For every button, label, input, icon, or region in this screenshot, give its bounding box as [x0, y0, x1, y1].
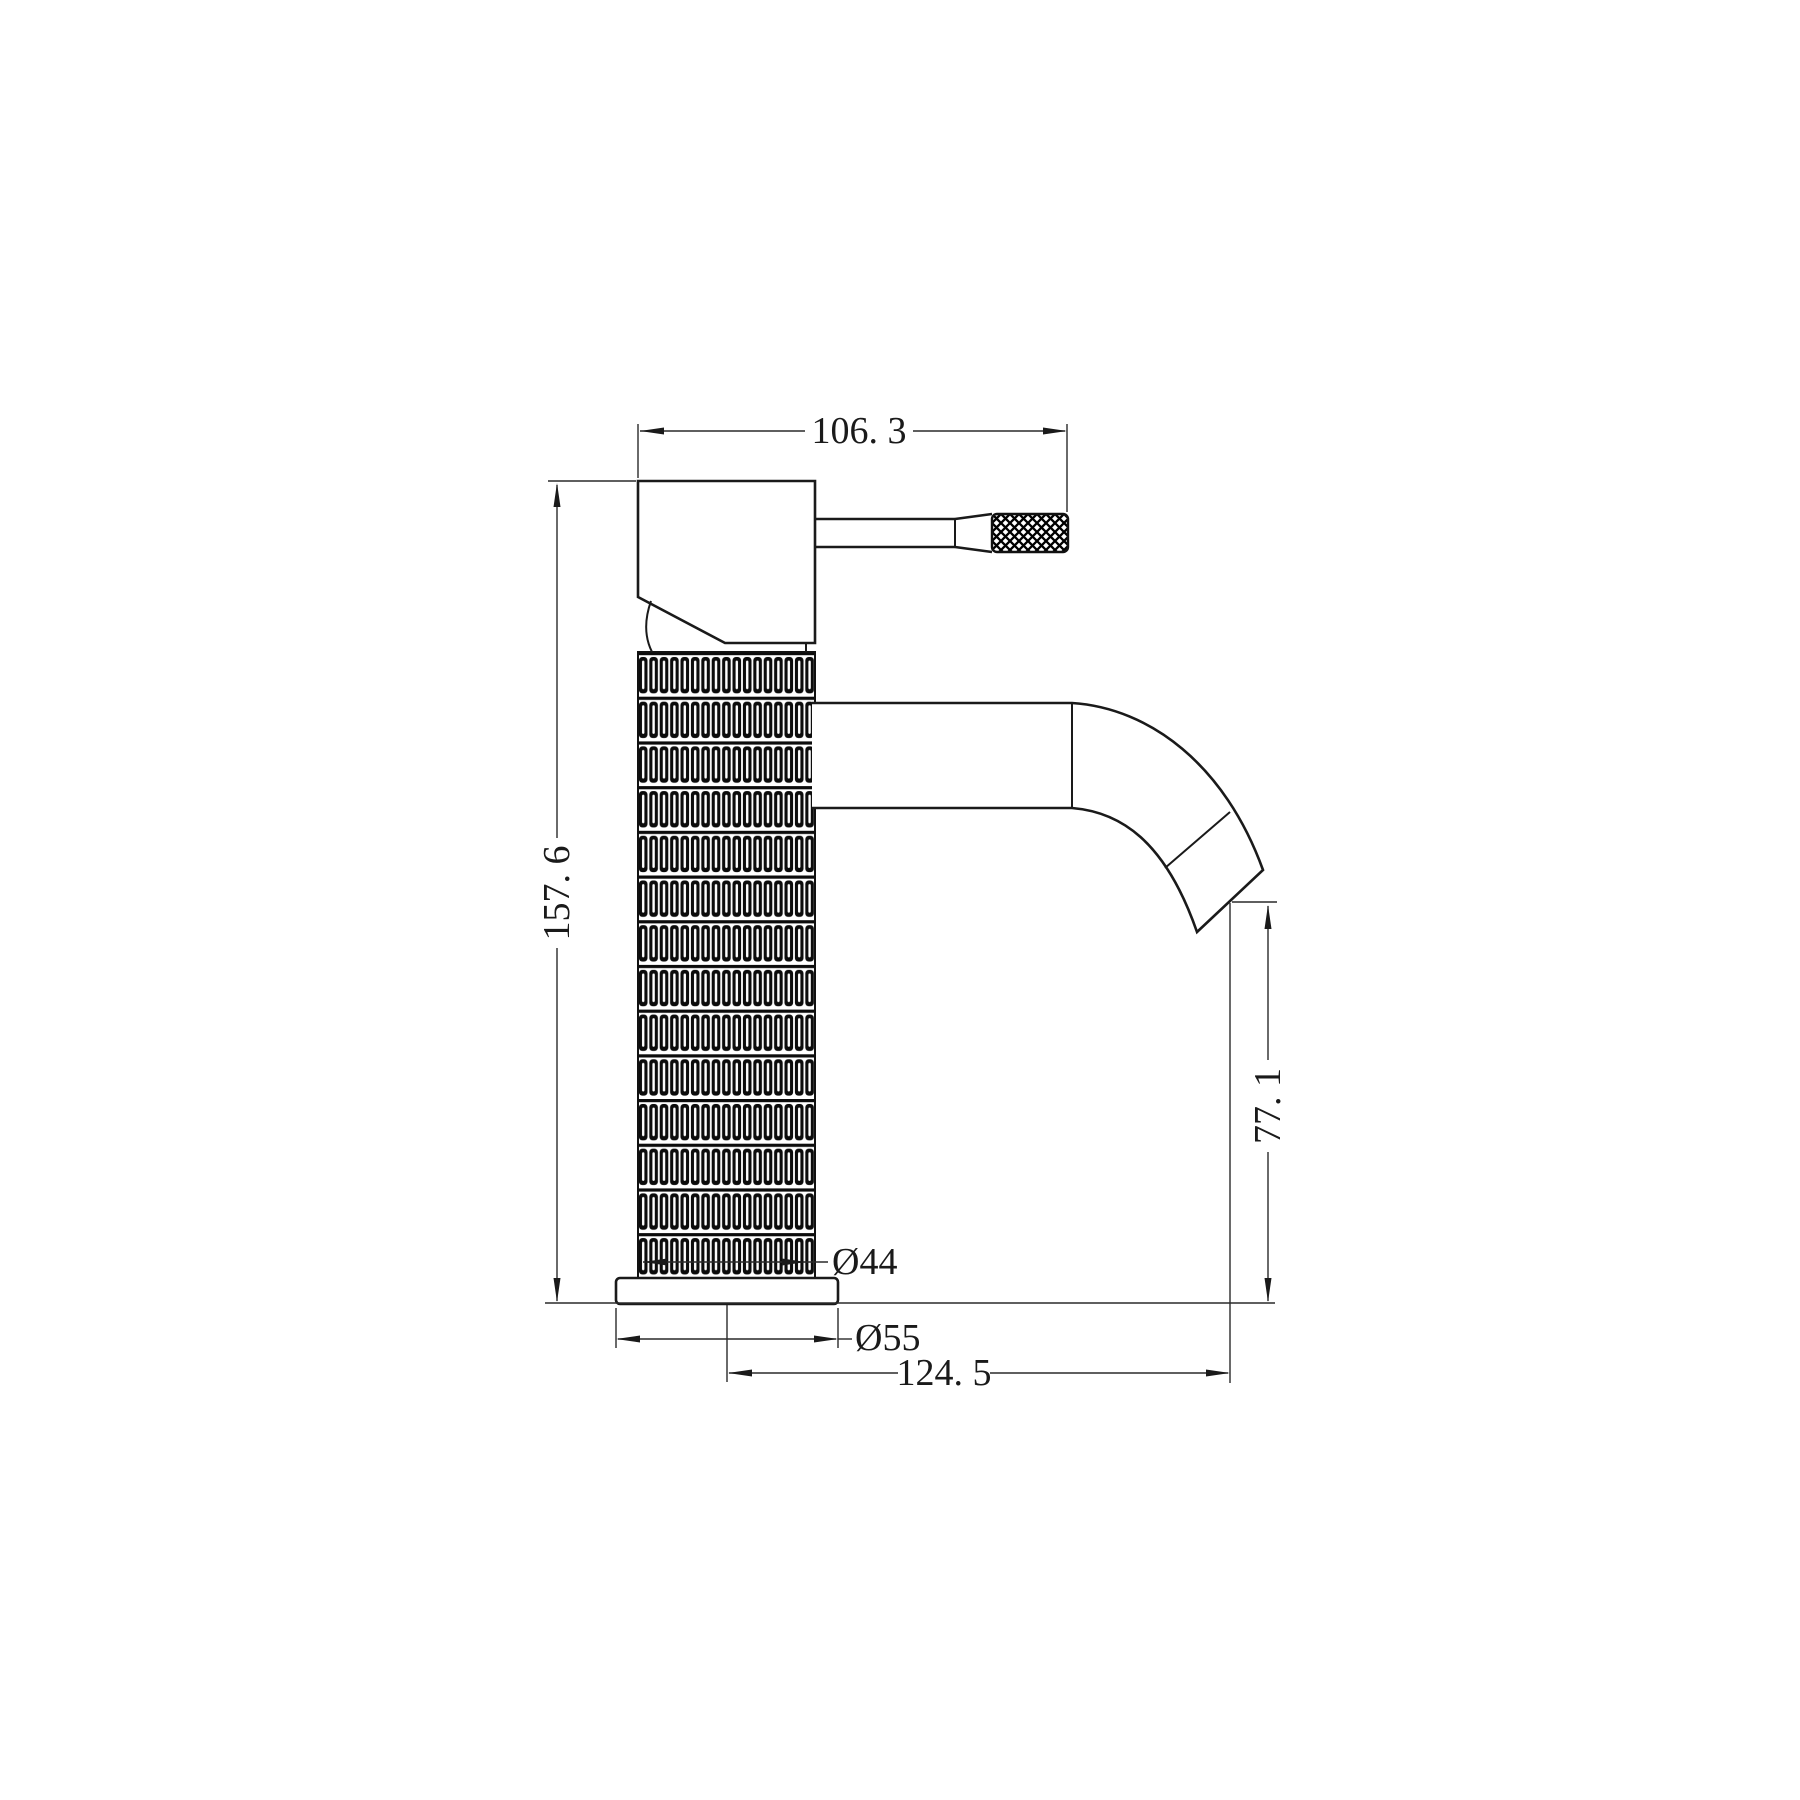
- dim-spout-outlet-height-label: 77. 1: [1247, 1068, 1289, 1144]
- handle-grip-knurled: [992, 514, 1068, 552]
- technical-drawing-page: 106. 3 157. 6 77. 1 Ø44 Ø55 124. 5: [0, 0, 1800, 1800]
- faucet-body-knurled: [638, 652, 815, 1278]
- dim-spout-reach-label: 124. 5: [897, 1352, 992, 1394]
- neck-transition-arc: [646, 601, 652, 652]
- dimension-base-diameter: [616, 1308, 852, 1348]
- faucet-spout: [812, 703, 1263, 932]
- technical-drawing-canvas: 106. 3 157. 6 77. 1 Ø44 Ø55 124. 5: [0, 0, 1800, 1800]
- dim-body-diameter-label: Ø44: [832, 1241, 897, 1283]
- faucet-base-flange: [616, 1278, 838, 1304]
- dim-overall-height-label: 157. 6: [536, 846, 578, 941]
- dim-top-width-label: 106. 3: [812, 410, 907, 452]
- faucet-head: [638, 481, 815, 652]
- faucet-handle-lever: [815, 514, 1068, 552]
